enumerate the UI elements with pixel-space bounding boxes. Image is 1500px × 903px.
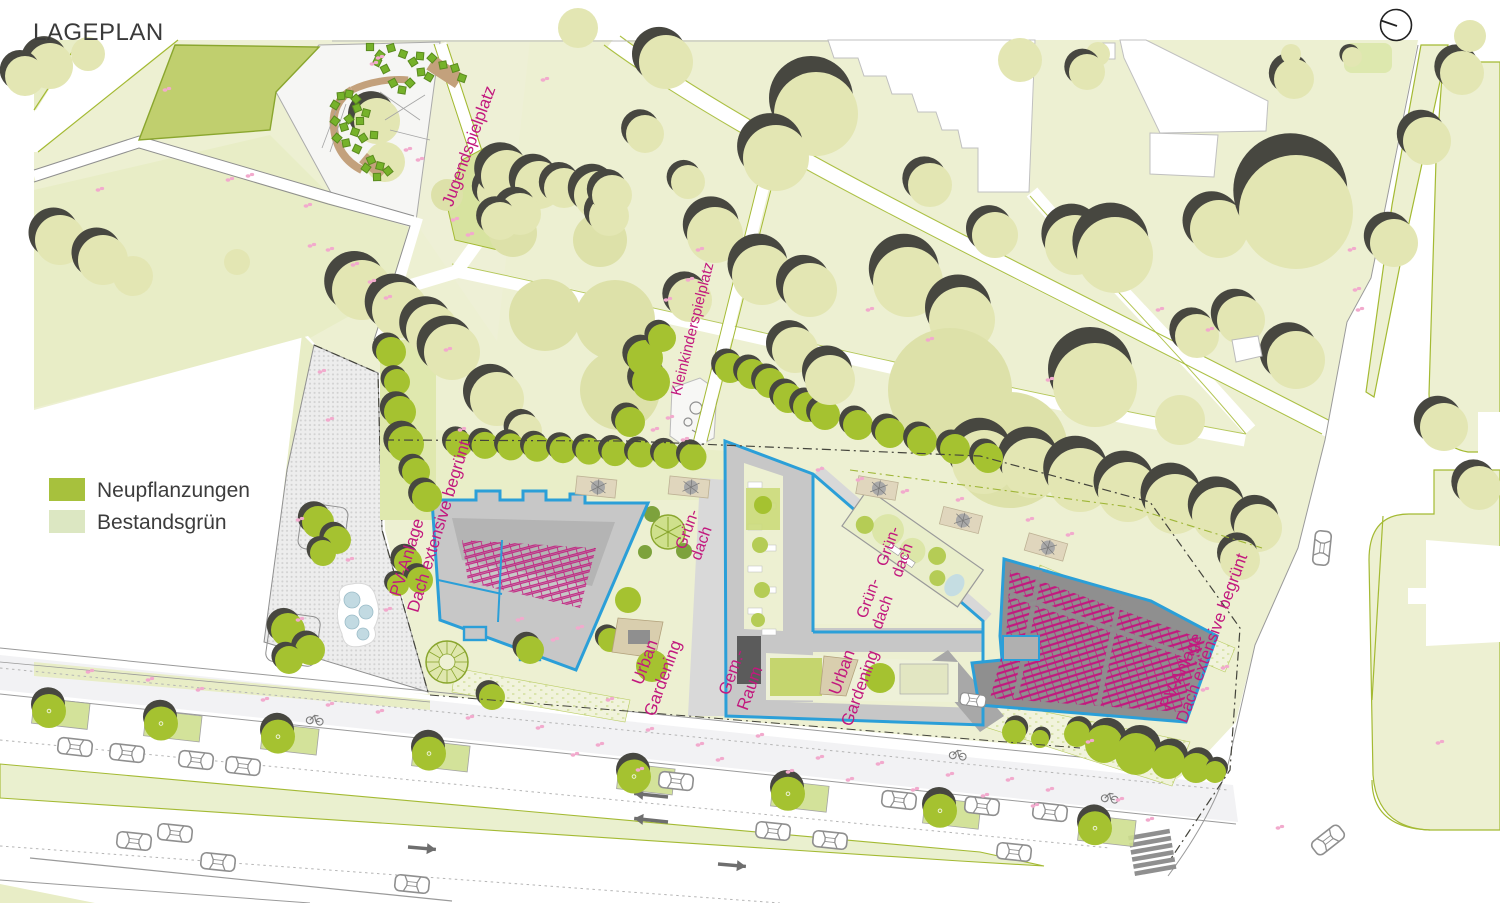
svg-text:Neupflanzungen: Neupflanzungen xyxy=(97,479,250,502)
svg-text:LAGEPLAN: LAGEPLAN xyxy=(33,19,164,46)
svg-text:Bestandsgrün: Bestandsgrün xyxy=(97,511,227,534)
